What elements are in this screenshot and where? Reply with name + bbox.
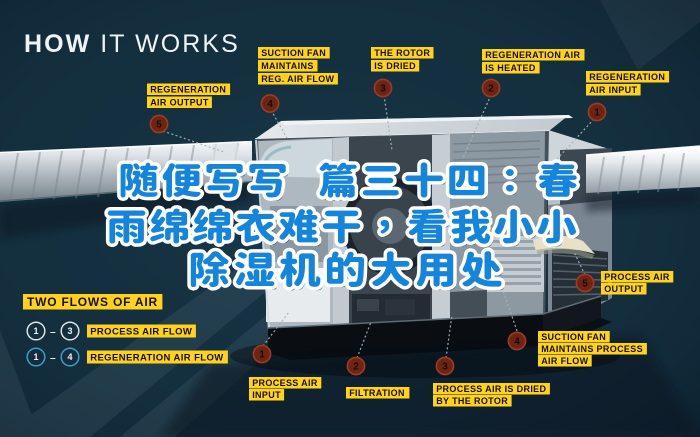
svg-text:SUCTION FAN: SUCTION FAN [541,332,606,342]
svg-text:REGENERATION AIR: REGENERATION AIR [485,50,580,60]
svg-text:2: 2 [488,83,494,94]
svg-text:5: 5 [156,119,162,130]
svg-text:3: 3 [67,326,72,336]
svg-text:OUTPUT: OUTPUT [604,284,643,294]
svg-text:PROCESS AIR: PROCESS AIR [604,272,670,282]
svg-text:AIR FLOW: AIR FLOW [541,356,588,366]
svg-text:–: – [50,327,56,338]
svg-text:REG. AIR FLOW: REG. AIR FLOW [261,74,334,84]
svg-text:4: 4 [514,336,520,347]
svg-text:3: 3 [380,83,386,94]
svg-text:–: – [50,353,56,364]
svg-text:MAINTAINS PROCESS: MAINTAINS PROCESS [541,344,643,354]
svg-text:REGENERATION AIR FLOW: REGENERATION AIR FLOW [90,352,223,363]
svg-text:INPUT: INPUT [252,390,281,400]
svg-text:1: 1 [33,352,38,362]
svg-text:REGENERATION: REGENERATION [589,72,665,82]
svg-text:MAINTAINS: MAINTAINS [261,61,313,71]
svg-text:PROCESS AIR IS DRIED: PROCESS AIR IS DRIED [436,384,546,394]
svg-text:3: 3 [442,361,448,372]
svg-text:IS DRIED: IS DRIED [374,61,416,71]
svg-text:2: 2 [353,361,359,372]
svg-text:BY THE ROTOR: BY THE ROTOR [436,396,508,406]
svg-text:AIR INPUT: AIR INPUT [589,85,637,95]
svg-text:PROCESS AIR: PROCESS AIR [252,378,318,388]
svg-text:1: 1 [33,326,38,336]
svg-text:REGENERATION: REGENERATION [150,85,226,95]
svg-text:FILTRATION: FILTRATION [349,388,405,398]
svg-text:4: 4 [267,99,273,110]
svg-text:IS HEATED: IS HEATED [485,63,536,73]
svg-text:1: 1 [259,349,265,360]
svg-text:THE ROTOR: THE ROTOR [374,48,430,58]
svg-text:PROCESS AIR FLOW: PROCESS AIR FLOW [90,326,192,337]
svg-text:5: 5 [582,278,588,289]
svg-text:TWO FLOWS OF AIR: TWO FLOWS OF AIR [27,295,158,309]
svg-text:SUCTION FAN: SUCTION FAN [261,48,326,58]
svg-text:1: 1 [594,107,600,118]
svg-text:AIR OUTPUT: AIR OUTPUT [150,98,209,108]
svg-text:HOW IT WORKS: HOW IT WORKS [24,30,240,58]
svg-text:4: 4 [67,352,72,362]
